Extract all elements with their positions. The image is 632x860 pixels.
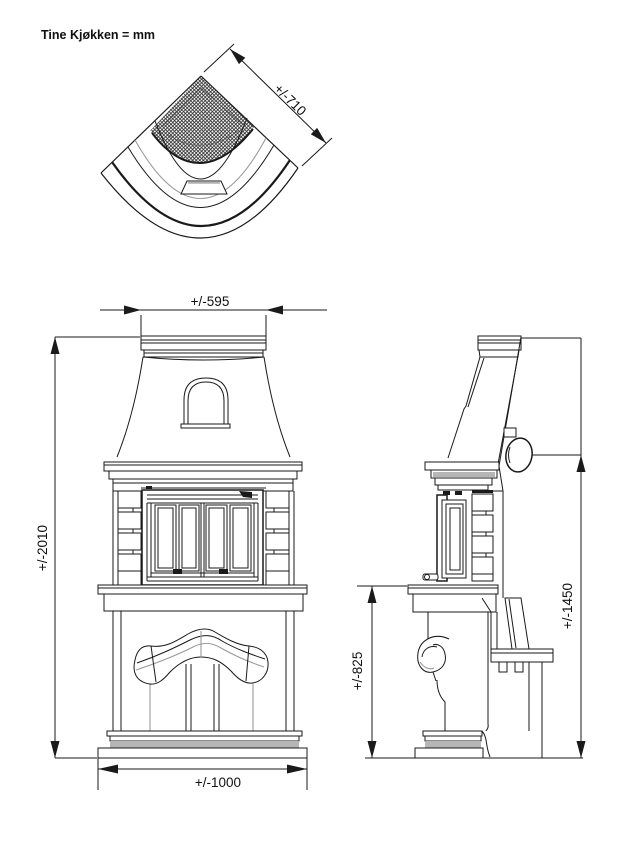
front-chimney-cap	[141, 336, 266, 357]
drawing-page: Tine Kjøkken = mm +/-710	[0, 0, 632, 860]
dimension-side-hearth-height: +/-825	[350, 586, 407, 758]
side-hearth-shelf	[408, 585, 498, 612]
front-middle-shelf	[98, 585, 307, 611]
front-hood	[117, 357, 290, 457]
side-chimney-cap	[478, 336, 521, 357]
side-plinth	[415, 731, 490, 758]
dimension-side-flue-height: +/-1450	[560, 338, 586, 758]
side-rear-pipe	[491, 598, 529, 649]
side-arch-curl	[418, 636, 449, 681]
dim-595-label: +/-595	[191, 294, 230, 309]
drawing-title: Tine Kjøkken = mm	[41, 28, 155, 42]
plan-view: +/-710	[101, 44, 332, 238]
side-body	[493, 491, 503, 598]
front-left-column	[113, 491, 141, 585]
dim-1450-label: +/-1450	[560, 583, 575, 629]
front-arch-ornament	[134, 629, 268, 684]
front-glass-door	[141, 486, 266, 585]
dim-825-label: +/-825	[350, 652, 365, 691]
front-view: +/-595 +/-2010 +/-1000	[35, 294, 327, 790]
dimension-front-top-width: +/-595	[100, 294, 327, 336]
side-flue-outlet	[503, 428, 535, 474]
front-base	[98, 611, 307, 758]
front-plinth	[98, 731, 307, 758]
side-base-column	[415, 612, 490, 758]
side-column-blocks	[472, 490, 493, 581]
technical-drawing: Tine Kjøkken = mm +/-710	[0, 0, 632, 860]
side-bench	[491, 649, 553, 758]
side-door-profile	[423, 495, 466, 581]
dimension-front-base-width: +/-1000	[98, 758, 307, 790]
side-view: +/-825 +/-1450	[350, 336, 586, 758]
front-mantel-shelf	[104, 462, 302, 491]
dim-710-label: +/-710	[271, 81, 309, 119]
dim-1000-label: +/-1000	[195, 775, 241, 790]
dim-2010-label: +/-2010	[35, 525, 50, 571]
hood-vent-arch	[184, 378, 228, 424]
front-right-column	[266, 491, 294, 585]
